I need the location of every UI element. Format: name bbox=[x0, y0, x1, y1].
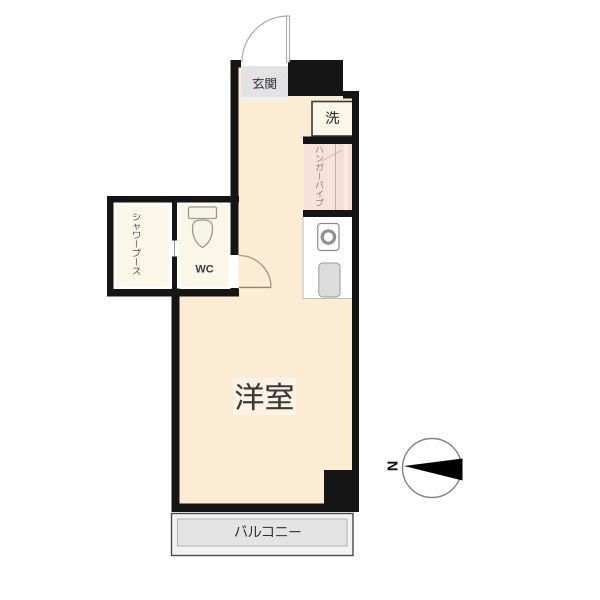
svg-text:WC: WC bbox=[195, 264, 213, 276]
svg-text:N: N bbox=[384, 461, 400, 471]
